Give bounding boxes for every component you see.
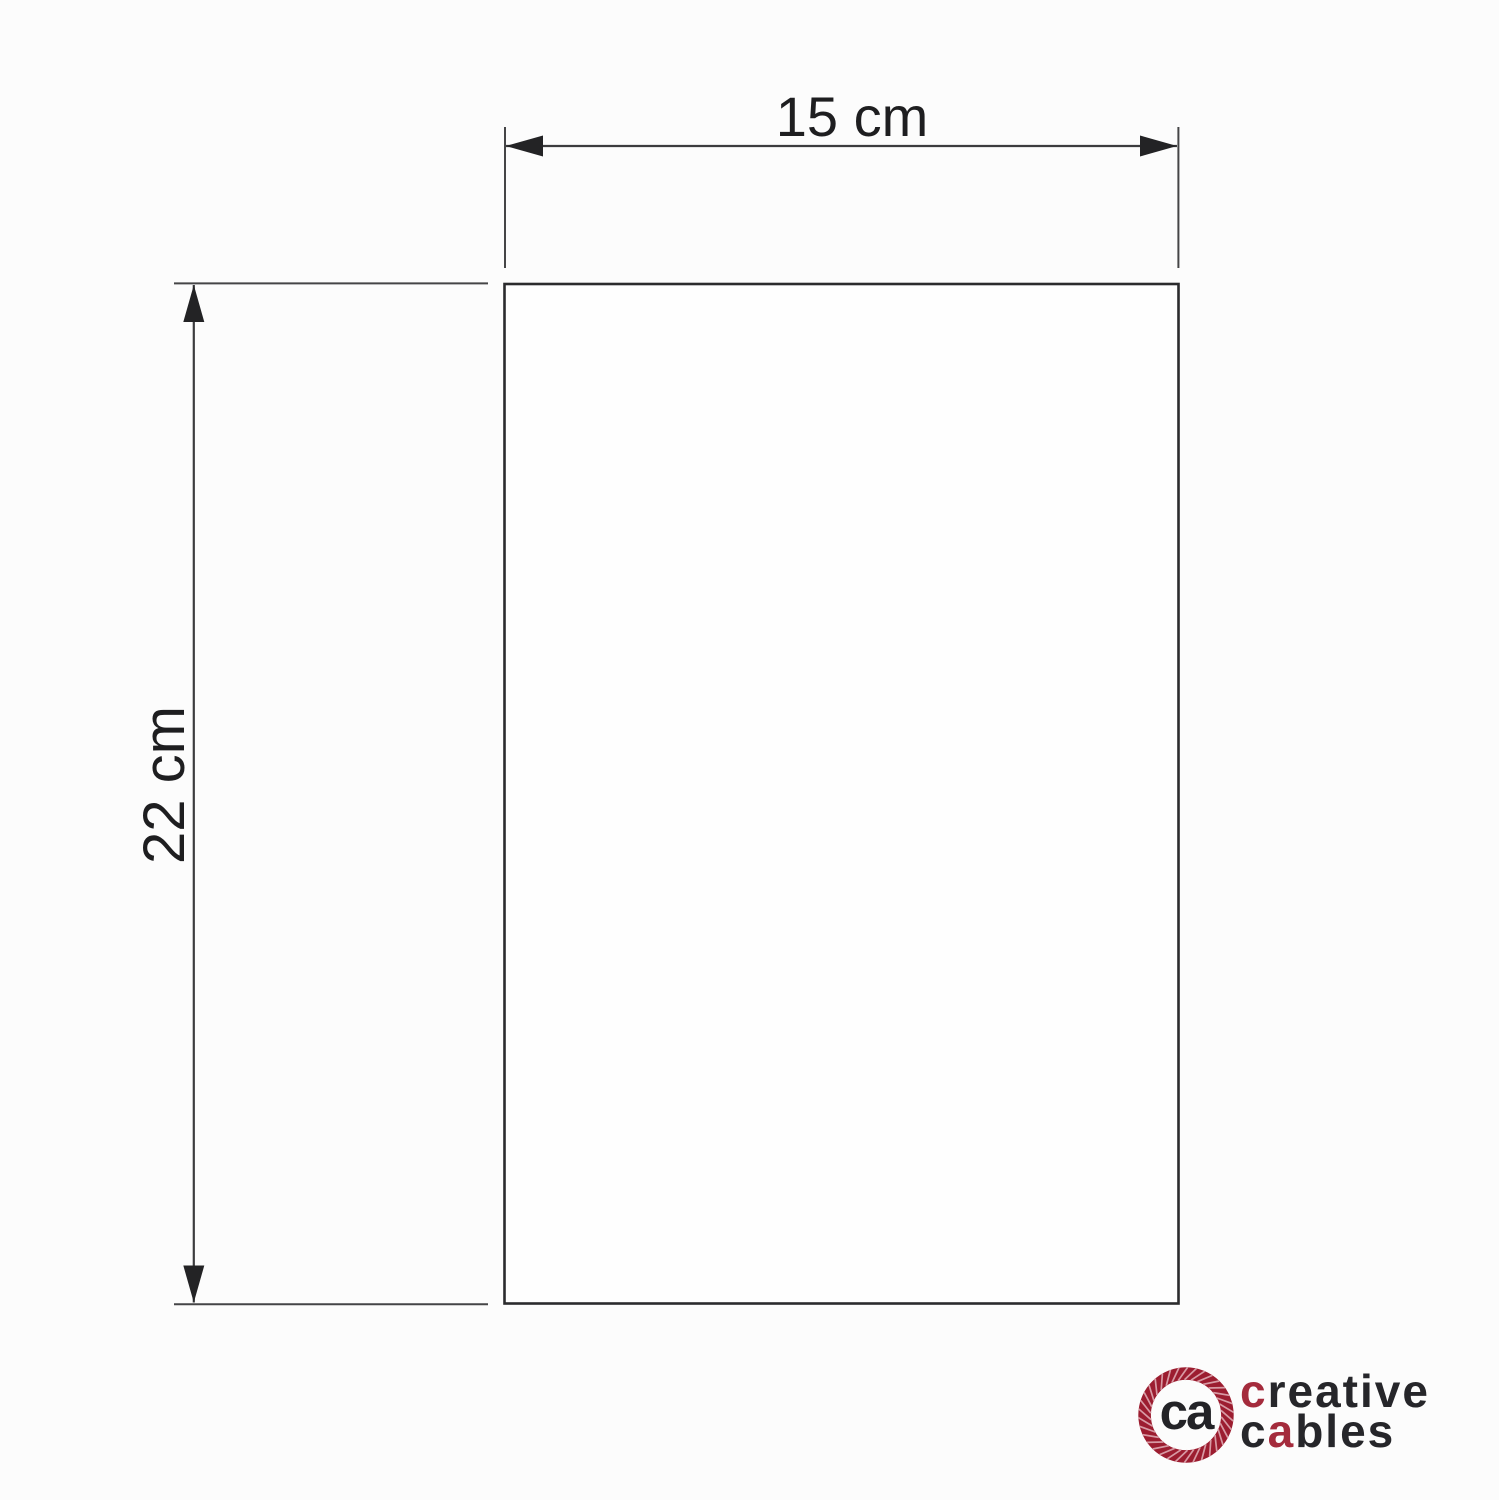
svg-text:22 cm: 22 cm — [132, 706, 197, 864]
svg-text:15 cm: 15 cm — [776, 85, 929, 148]
svg-text:cables: cables — [1240, 1405, 1395, 1457]
svg-text:ca: ca — [1160, 1383, 1215, 1440]
